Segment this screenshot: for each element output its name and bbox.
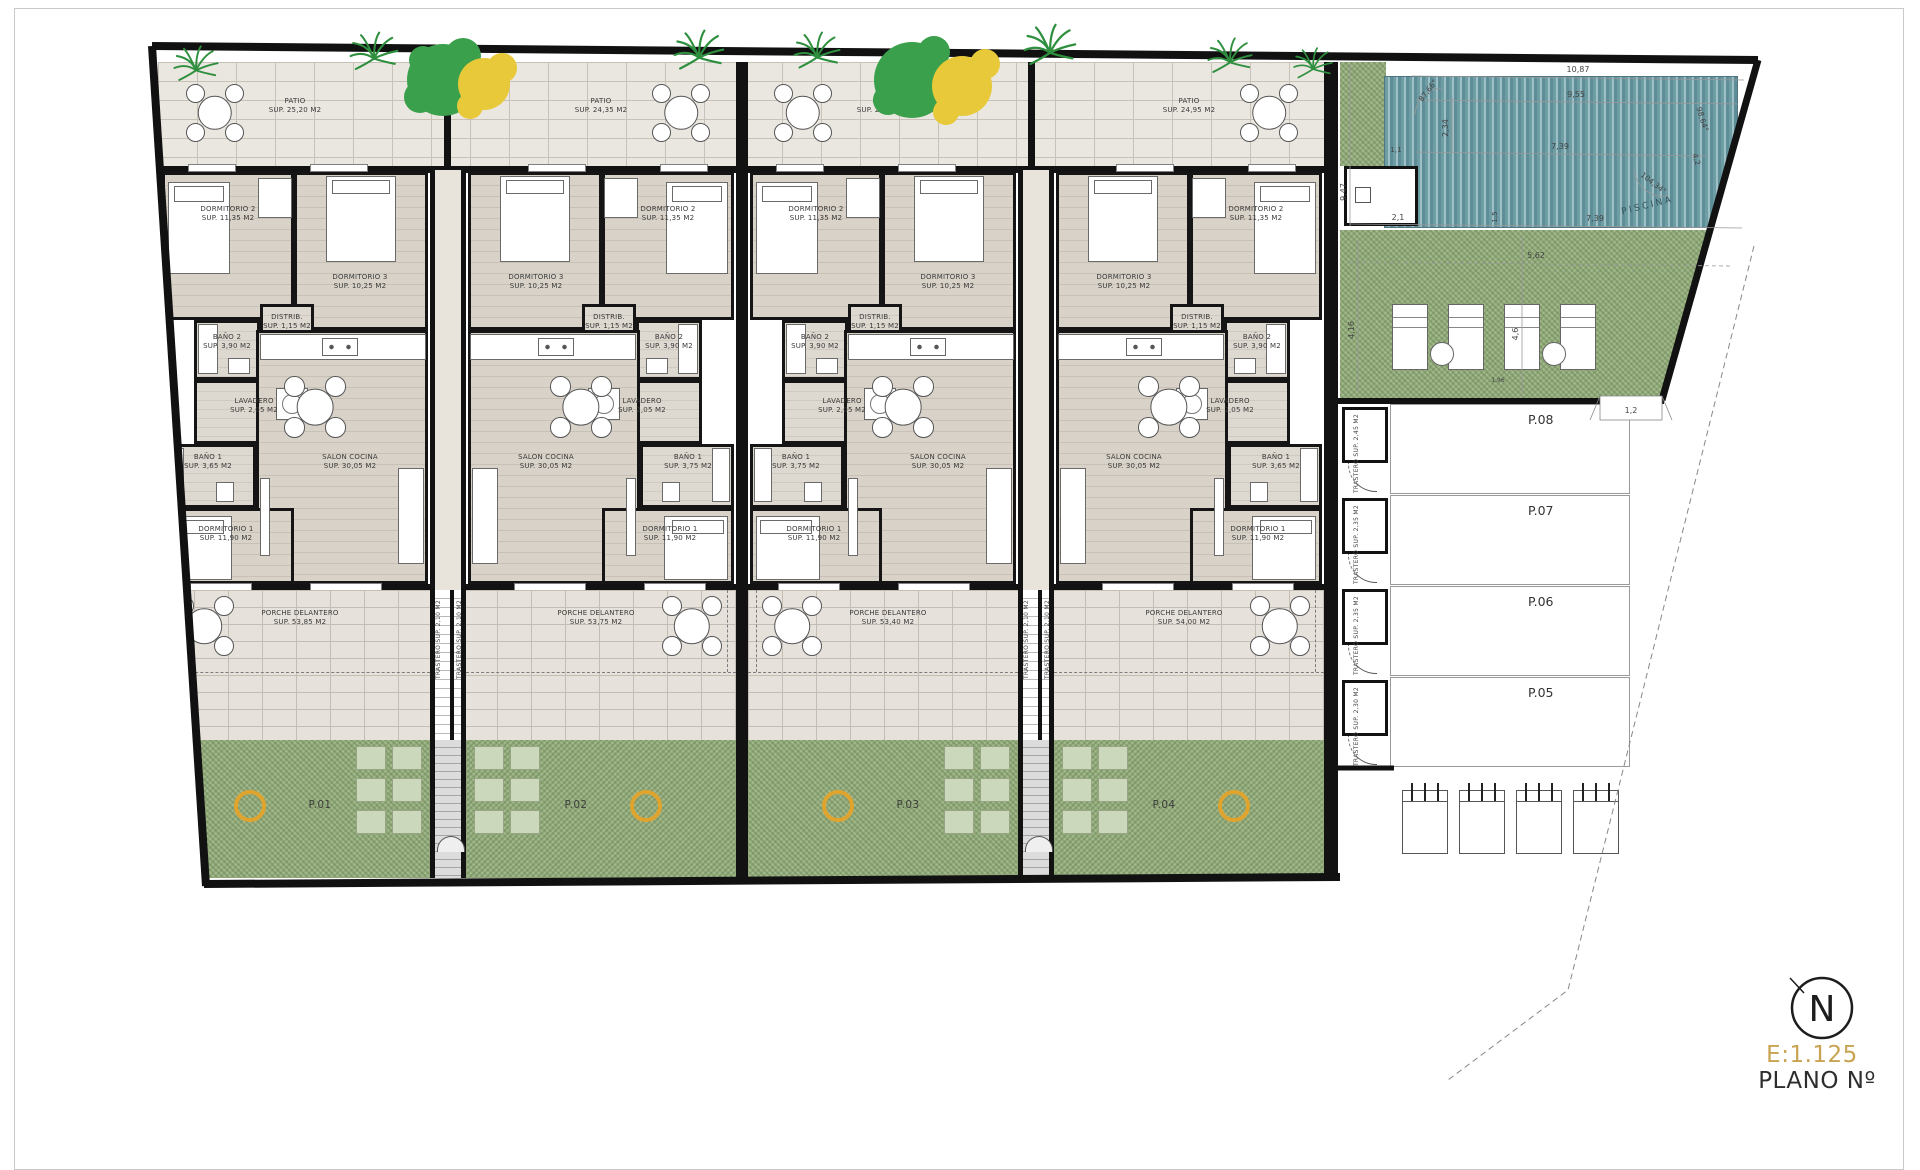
porche-label: PORCHE DELANTERO SUP. 54,00 M2	[1145, 609, 1222, 627]
dormitorio2-label: DORMITORIO 2SUP. 11,35 M2	[788, 205, 843, 223]
trastero-strip: TRASTERO SUP. 2,10 M2 TRASTERO SUP. 2,10…	[430, 590, 466, 740]
planter	[356, 778, 386, 802]
toilet	[1250, 482, 1268, 502]
patio-label: PATIO SUP. 25,20 M2	[269, 97, 322, 115]
window	[1248, 164, 1296, 172]
patio-label: PATIO SUP. 26,00 M2	[857, 97, 910, 115]
porche-label: PORCHE DELANTERO SUP. 53,40 M2	[849, 609, 926, 627]
garden-light	[630, 790, 662, 822]
porche-boundary-dashed	[168, 590, 169, 672]
planter	[944, 746, 974, 770]
dormitorio2-label: DORMITORIO 2SUP. 11,35 M2	[1228, 205, 1283, 223]
lavadero-label: LAVADEROSUP. 2,05 M2	[230, 397, 278, 415]
toilet	[662, 482, 680, 502]
lavadero-label: LAVADEROSUP. 2,05 M2	[818, 397, 866, 415]
tv-unit	[848, 478, 858, 556]
bathtub	[1300, 448, 1318, 502]
planter	[392, 778, 422, 802]
window	[188, 164, 236, 172]
moto-space	[1516, 790, 1562, 854]
toilet	[804, 482, 822, 502]
porche-table	[174, 596, 234, 656]
sofa	[1060, 468, 1086, 564]
dining-table	[1138, 376, 1200, 438]
moto-space	[1573, 790, 1619, 854]
moto-space	[1402, 790, 1448, 854]
planter	[1098, 810, 1128, 834]
sun-lounger	[1504, 304, 1540, 370]
stair-vestibule	[430, 170, 466, 590]
building-right-wall	[1324, 62, 1338, 880]
planter	[474, 778, 504, 802]
planter	[474, 746, 504, 770]
bano1-label: BAÑO 1SUP. 3,65 M2	[184, 453, 232, 471]
wardrobe	[258, 178, 292, 218]
trastero-room: TRASTERO SUP. 2,45 M2	[1342, 407, 1388, 463]
salon-label: SALON COCINASUP. 30,05 M2	[322, 453, 378, 471]
sink	[1234, 358, 1256, 374]
equipment	[1355, 187, 1371, 203]
distrib-label: DISTRIB.SUP. 1,15 M2	[851, 313, 899, 331]
planter	[1062, 810, 1092, 834]
parking-row: TRASTERO SUP. 2,30 M2 P.05	[1342, 677, 1632, 768]
entry-stairs	[1018, 740, 1054, 878]
porche-table	[1250, 596, 1310, 656]
porche-label: PORCHE DELANTERO SUP. 53,85 M2	[261, 609, 338, 627]
porche-table	[662, 596, 722, 656]
pillow	[762, 186, 812, 202]
parking-row: TRASTERO SUP. 2,35 M2 P.06	[1342, 586, 1632, 677]
pillow	[174, 186, 224, 202]
lavadero-label: LAVADEROSUP. 2,05 M2	[1206, 397, 1254, 415]
plot-number: P.01	[309, 799, 332, 813]
salon-label: SALON COCINASUP. 30,05 M2	[910, 453, 966, 471]
dormitorio2-label: DORMITORIO 2SUP. 11,35 M2	[640, 205, 695, 223]
patio-table	[186, 84, 244, 142]
dormitorio3-label: DORMITORIO 3SUP. 10,25 M2	[508, 273, 563, 291]
tv-unit	[1214, 478, 1224, 556]
entry-arch	[437, 836, 465, 852]
porche-boundary-dashed	[756, 590, 757, 672]
trastero-room: TRASTERO SUP. 2,35 M2	[1342, 498, 1388, 554]
wardrobe	[846, 178, 880, 218]
parking-number: P.06	[1528, 594, 1553, 609]
moto-space	[1459, 790, 1505, 854]
parking-space	[1390, 677, 1630, 767]
side-table	[1430, 342, 1454, 366]
pillow	[1260, 186, 1310, 202]
dwelling-unit: PATIO SUP. 24,35 M2	[466, 62, 736, 878]
parking-space	[1390, 495, 1630, 585]
planter	[1062, 746, 1092, 770]
garden-light	[1218, 790, 1250, 822]
sofa	[398, 468, 424, 564]
planter	[1098, 778, 1128, 802]
patio-divider-wall	[444, 62, 451, 170]
planter	[392, 810, 422, 834]
dining-table	[550, 376, 612, 438]
sink	[646, 358, 668, 374]
window	[528, 164, 586, 172]
patio-table	[652, 84, 710, 142]
front-garden	[748, 740, 1018, 878]
bano1-label: BAÑO 1SUP. 3,65 M2	[1252, 453, 1300, 471]
pillow	[920, 180, 978, 194]
dormitorio2-label: DORMITORIO 2SUP. 11,35 M2	[200, 205, 255, 223]
plot-number: P.02	[565, 799, 588, 813]
planter	[980, 810, 1010, 834]
sofa	[986, 468, 1012, 564]
bano2-label: BAÑO 2SUP. 3,90 M2	[1233, 333, 1281, 351]
dwelling-unit: PATIO SUP. 25,20 M2	[160, 62, 430, 878]
patio-label: PATIO SUP. 24,35 M2	[575, 97, 628, 115]
parking-space	[1390, 586, 1630, 676]
bano2-label: BAÑO 2SUP. 3,90 M2	[645, 333, 693, 351]
dwelling-unit: PATIO SUP. 24,95 M2	[1054, 62, 1324, 878]
sink	[228, 358, 250, 374]
shared-stairwell: TRASTERO SUP. 2,10 M2 TRASTERO SUP. 2,10…	[430, 170, 466, 878]
salon-label: SALON COCINASUP. 30,05 M2	[518, 453, 574, 471]
planter	[356, 746, 386, 770]
dining-table	[872, 376, 934, 438]
trastero-label: TRASTERO SUP. 2,10 M2	[456, 600, 463, 679]
planter	[510, 746, 540, 770]
front-garden	[160, 740, 430, 878]
floorplan-sheet: { "sheet": { "north": "N", "scale": "E:1…	[0, 0, 1920, 1080]
window	[1116, 164, 1174, 172]
entry-arch	[1025, 836, 1053, 852]
porche-table	[762, 596, 822, 656]
patio-label: PATIO SUP. 24,95 M2	[1163, 97, 1216, 115]
entry-stairs	[430, 740, 466, 878]
planter	[356, 810, 386, 834]
dormitorio1-label: DORMITORIO 1SUP. 11,90 M2	[642, 525, 697, 543]
tv-unit	[626, 478, 636, 556]
swimming-pool	[1384, 76, 1738, 228]
porche-label: PORCHE DELANTERO SUP. 53,75 M2	[557, 609, 634, 627]
planter	[944, 810, 974, 834]
window	[898, 164, 956, 172]
hob	[1126, 338, 1162, 356]
sun-lounger	[1448, 304, 1484, 370]
planter	[1062, 778, 1092, 802]
planter	[510, 810, 540, 834]
pillow	[672, 186, 722, 202]
wardrobe	[604, 178, 638, 218]
garden-light	[822, 790, 854, 822]
parking-number: P.08	[1528, 412, 1553, 427]
planter	[1098, 746, 1128, 770]
plano-number-label: PLANO Nº	[1742, 1068, 1892, 1094]
bano2-label: BAÑO 2SUP. 3,90 M2	[203, 333, 251, 351]
sun-lounger	[1560, 304, 1596, 370]
trastero-label: TRASTERO SUP. 2,10 M2	[1044, 600, 1051, 679]
distrib-label: DISTRIB.SUP. 1,15 M2	[585, 313, 633, 331]
distrib-label: DISTRIB.SUP. 1,15 M2	[1173, 313, 1221, 331]
dormitorio3-label: DORMITORIO 3SUP. 10,25 M2	[332, 273, 387, 291]
patio-table	[1240, 84, 1298, 142]
hob	[910, 338, 946, 356]
parking-row: TRASTERO SUP. 2,35 M2 P.07	[1342, 495, 1632, 586]
porche-boundary-dashed	[1315, 590, 1316, 672]
patio-table	[774, 84, 832, 142]
porche-boundary-dashed	[160, 672, 430, 673]
garden-light	[234, 790, 266, 822]
sun-lounger	[1392, 304, 1428, 370]
distrib-label: DISTRIB.SUP. 1,15 M2	[263, 313, 311, 331]
dormitorio3-label: DORMITORIO 3SUP. 10,25 M2	[920, 273, 975, 291]
bano2-label: BAÑO 2SUP. 3,90 M2	[791, 333, 839, 351]
pool-side-grass	[1340, 62, 1386, 166]
porche-boundary-dashed	[727, 590, 728, 672]
pillow	[1094, 180, 1152, 194]
dormitorio1-label: DORMITORIO 1SUP. 11,90 M2	[786, 525, 841, 543]
trastero-room: TRASTERO SUP. 2,30 M2	[1342, 680, 1388, 736]
bano1-label: BAÑO 1SUP. 3,75 M2	[772, 453, 820, 471]
front-garden	[1054, 740, 1324, 878]
trastero-strip: TRASTERO SUP. 2,10 M2 TRASTERO SUP. 2,10…	[1018, 590, 1054, 740]
shared-stairwell: TRASTERO SUP. 2,10 M2 TRASTERO SUP. 2,10…	[1018, 170, 1054, 878]
parking-space	[1390, 404, 1630, 494]
trastero-label: TRASTERO SUP. 2,10 M2	[435, 600, 442, 679]
patio-divider-wall	[1028, 62, 1035, 170]
porche-boundary-dashed	[748, 672, 1018, 673]
trastero-room: TRASTERO SUP. 2,35 M2	[1342, 589, 1388, 645]
window	[776, 164, 824, 172]
planter	[392, 746, 422, 770]
tv-unit	[260, 478, 270, 556]
plot-number: P.04	[1153, 799, 1176, 813]
sink	[816, 358, 838, 374]
planter	[980, 746, 1010, 770]
lavadero-label: LAVADEROSUP. 2,05 M2	[618, 397, 666, 415]
dining-table	[284, 376, 346, 438]
porche-boundary-dashed	[1054, 672, 1324, 673]
window	[310, 164, 368, 172]
bathtub	[166, 448, 184, 502]
bano1-label: BAÑO 1SUP. 3,75 M2	[664, 453, 712, 471]
dormitorio3-label: DORMITORIO 3SUP. 10,25 M2	[1096, 273, 1151, 291]
hob	[538, 338, 574, 356]
hob	[322, 338, 358, 356]
dormitorio1-label: DORMITORIO 1SUP. 11,90 M2	[1230, 525, 1285, 543]
planter	[510, 778, 540, 802]
parking-number: P.07	[1528, 503, 1553, 518]
planter	[980, 778, 1010, 802]
bathtub	[754, 448, 772, 502]
trastero-label: TRASTERO SUP. 2,10 M2	[1023, 600, 1030, 679]
window	[660, 164, 708, 172]
pool-plant-room	[1344, 166, 1418, 226]
pillow	[506, 180, 564, 194]
parking-number: P.05	[1528, 685, 1553, 700]
porche-boundary-dashed	[466, 672, 736, 673]
planter	[944, 778, 974, 802]
dormitorio1-label: DORMITORIO 1SUP. 11,90 M2	[198, 525, 253, 543]
bathtub	[712, 448, 730, 502]
scale-label: E:1.125	[1742, 1042, 1882, 1068]
side-table	[1542, 342, 1566, 366]
planter	[474, 810, 504, 834]
parking-row: TRASTERO SUP. 2,45 M2 P.08	[1342, 404, 1632, 495]
wardrobe	[1192, 178, 1226, 218]
party-wall	[736, 62, 748, 878]
salon-label: SALON COCINASUP. 30,05 M2	[1106, 453, 1162, 471]
toilet	[216, 482, 234, 502]
dwelling-unit: PATIO SUP. 26,00 M2	[748, 62, 1018, 878]
stair-vestibule	[1018, 170, 1054, 590]
sofa	[472, 468, 498, 564]
plot-number: P.03	[897, 799, 920, 813]
pillow	[332, 180, 390, 194]
front-garden	[466, 740, 736, 878]
